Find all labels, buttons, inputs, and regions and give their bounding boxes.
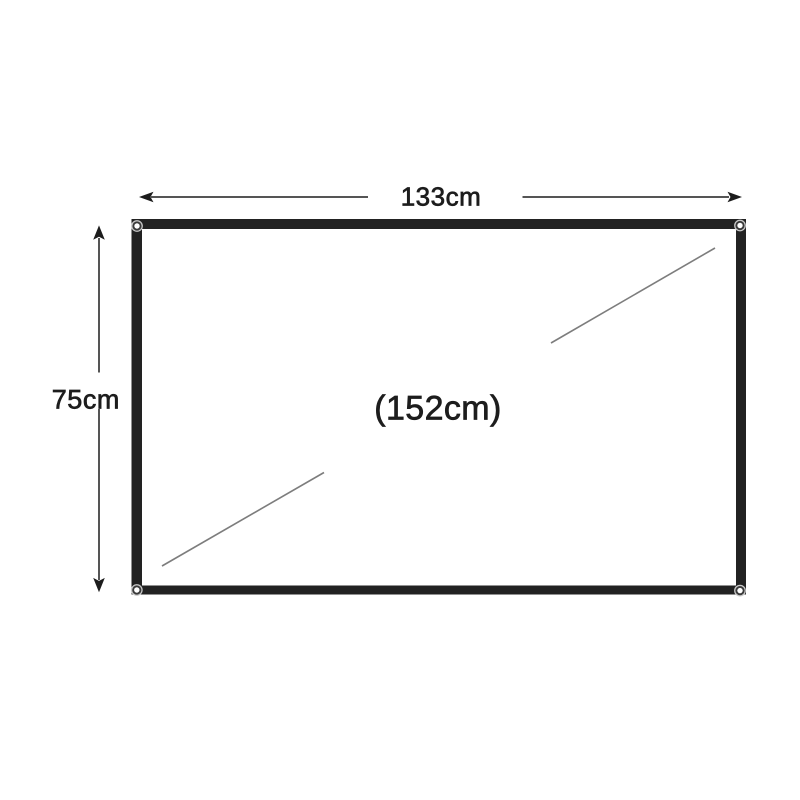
svg-text:133cm: 133cm xyxy=(401,181,482,211)
svg-text:75cm: 75cm xyxy=(52,385,120,415)
svg-text:(152cm): (152cm) xyxy=(374,390,502,428)
